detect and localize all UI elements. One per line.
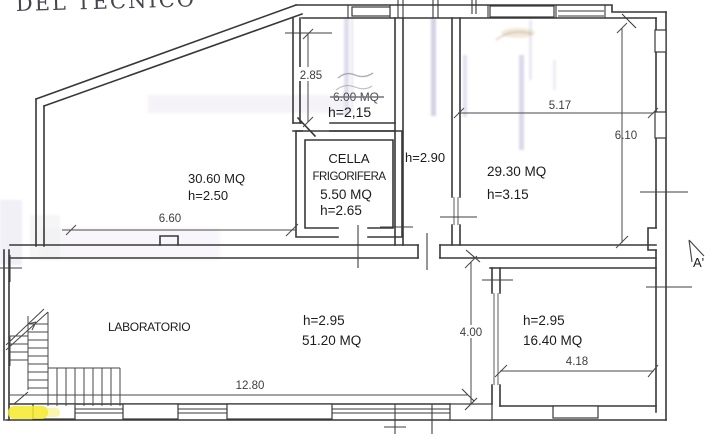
window: [227, 404, 332, 419]
window: [553, 406, 598, 418]
room-top-right-height: h=3.15: [487, 187, 529, 202]
corridor-height: h=2.90: [405, 150, 445, 165]
corridor-walls: [395, 18, 460, 245]
cella-name-1: CELLA: [328, 151, 370, 166]
whiteout-smudges: [0, 18, 556, 265]
dim-2-85: 2.85: [300, 70, 322, 82]
room-top-right-area: 29.30 MQ: [487, 164, 546, 179]
window: [655, 30, 666, 52]
room-top-left-area: 30.60 MQ: [188, 171, 245, 186]
laboratorio-name: LABORATORIO: [108, 320, 190, 334]
dim-6-60: 6.60: [159, 213, 181, 225]
dim-4-00: 4.00: [460, 327, 482, 339]
section-marker-label: A': [693, 255, 704, 270]
window: [123, 404, 178, 419]
laboratorio-area: 51.20 MQ: [302, 333, 361, 348]
window: [490, 6, 554, 17]
cella-area: 5.50 MQ: [320, 187, 372, 202]
small-room-height: h=2,15: [328, 104, 371, 120]
cella-walls: [296, 131, 402, 237]
dim-12-80: 12.80: [236, 380, 265, 392]
floor-plan-drawing: A' DEL TECNICO 30.60 MQ h=2.50 h=2,15 6.…: [0, 0, 714, 436]
right-room-window-wall: [494, 293, 498, 385]
pencil-squiggles: [336, 73, 373, 90]
laboratorio-height: h=2.95: [303, 313, 345, 328]
floor-plan-scan: A' DEL TECNICO 30.60 MQ h=2.50 h=2,15 6.…: [0, 0, 714, 436]
dim-6-10: 6.10: [615, 130, 637, 142]
section-marker: A': [689, 240, 704, 270]
staircase: [6, 309, 120, 406]
room-bottom-right-height: h=2.95: [523, 313, 565, 328]
window: [655, 112, 666, 138]
cella-name-2: FRIGORIFERA: [312, 171, 386, 183]
door-tick: [298, 118, 315, 136]
room-top-left-height: h=2.50: [188, 188, 228, 203]
dim-4-18: 4.18: [566, 356, 588, 368]
window: [352, 7, 390, 16]
dim-5-17: 5.17: [549, 100, 571, 112]
right-room-left-wall: [492, 268, 500, 406]
cella-height: h=2.65: [320, 203, 362, 218]
corridor-window: [454, 197, 458, 225]
wall-pier: [450, 404, 492, 420]
handwritten-note: DEL TECNICO: [16, 0, 197, 16]
room-bottom-right-area: 16.40 MQ: [523, 333, 582, 348]
